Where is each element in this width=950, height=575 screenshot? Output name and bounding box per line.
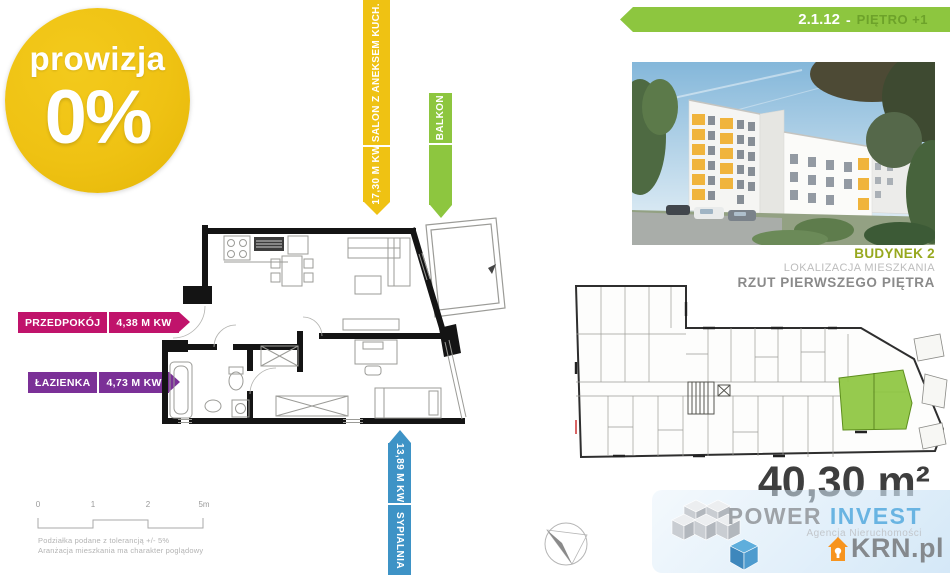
brand-word-power: POWER — [728, 503, 822, 529]
salon-banner: SALON Z ANEKSEM KUCH. 17,30 M KW — [363, 0, 390, 215]
balkon-stem — [429, 145, 452, 205]
brand-word-invest: INVEST — [830, 503, 922, 529]
apartment-furniture — [170, 236, 441, 418]
building-name: BUDYNEK 2 — [535, 246, 935, 262]
building-floorplan — [573, 282, 948, 462]
scale-tick-1: 1 — [91, 500, 95, 509]
badge-percent: 0% — [45, 74, 151, 161]
scale-tick-2: 2 — [146, 500, 150, 509]
sypialnia-name-segment: SYPIALNIA — [388, 505, 411, 575]
lazienka-label: ŁAZIENKA 4,73 M KW — [28, 372, 180, 393]
building-location-label: LOKALIZACJA MIESZKANIA — [535, 262, 935, 275]
unit-separator: - — [846, 12, 851, 28]
salon-area: 17,30 M KW — [371, 145, 382, 205]
krn-text: KRN.pl — [851, 533, 944, 564]
building-photo — [632, 62, 935, 245]
badge-word: prowizja — [29, 40, 165, 78]
przedpokoj-name: PRZEDPOKÓJ — [18, 312, 107, 333]
plan-note-line2: Aranżacja mieszkania ma charakter pogląd… — [38, 546, 203, 556]
unit-floor: PIĘTRO +1 — [857, 12, 928, 27]
salon-label: SALON Z ANEKSEM KUCH. — [371, 3, 382, 142]
blue-cube — [730, 539, 758, 570]
highlighted-unit — [839, 370, 912, 430]
scale-tick-5m: 5m — [198, 500, 209, 509]
commission-badge: prowizja 0% — [5, 8, 190, 193]
plan-notes: Podziałka podane z tolerancją +/- 5% Ara… — [38, 536, 203, 555]
lazienka-name: ŁAZIENKA — [28, 372, 97, 393]
sypialnia-area-segment: 13,89 M KW — [388, 443, 411, 503]
listing-flyer: prowizja 0% SALON Z ANEKSEM KUCH. 17,30 … — [0, 0, 950, 575]
scale-tick-0: 0 — [36, 500, 40, 509]
plan-note-line1: Podziałka podane z tolerancją +/- 5% — [38, 536, 203, 546]
balkon-label: BALKON — [435, 95, 446, 140]
salon-name-segment: SALON Z ANEKSEM KUCH. — [363, 0, 390, 145]
unit-number-banner: 2.1.12 - PIĘTRO +1 — [620, 7, 950, 32]
salon-area-segment: 17,30 M KW — [363, 147, 390, 202]
apartment-floorplan — [158, 216, 518, 442]
sypialnia-area: 13,89 M KW — [394, 443, 405, 503]
unit-number: 2.1.12 — [798, 11, 840, 28]
apartment-walls — [165, 228, 462, 421]
house-icon — [827, 536, 849, 562]
balcony-outline — [426, 218, 505, 317]
photo-balconies-right — [858, 158, 869, 210]
power-invest-wordmark: POWER INVEST — [728, 503, 922, 530]
balkon-name-segment: BALKON — [429, 93, 452, 143]
compass-icon — [532, 508, 600, 574]
scale-bar — [36, 510, 216, 534]
krn-watermark: KRN.pl — [827, 533, 944, 564]
sypialnia-banner: 13,89 M KW SYPIALNIA — [388, 430, 411, 575]
balkon-banner: BALKON — [429, 93, 452, 218]
sypialnia-label: SYPIALNIA — [394, 512, 405, 569]
